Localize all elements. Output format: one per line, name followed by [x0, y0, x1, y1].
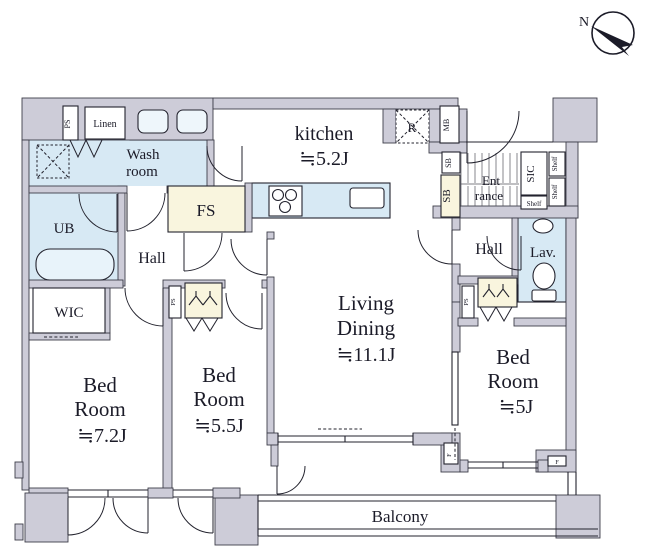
window-swing-2 — [113, 498, 148, 533]
room-label-washroom-2: room — [126, 164, 158, 180]
room-label-ub: UB — [54, 221, 75, 237]
room-label-fs: FS — [197, 201, 216, 220]
pillar-bottom-left — [25, 493, 68, 542]
label-mb: MB — [442, 119, 451, 131]
room-label-linen: Linen — [93, 119, 116, 130]
room-label-bed1-2: Room — [74, 397, 125, 421]
door-balcony — [277, 466, 305, 494]
room-size-bed3: ≒5J — [499, 396, 534, 418]
room-label-hall-left: Hall — [138, 250, 166, 267]
label-shelf-3: Shelf — [551, 184, 559, 199]
sliding-door — [452, 352, 458, 425]
balcony-right-edge — [568, 472, 576, 495]
floor-plan: kitchen ≒5.2J Living Dining ≒11.1J Bed R… — [0, 0, 653, 559]
room-label-entrance-2: rance — [475, 188, 503, 203]
room-size-bed2: ≒5.5J — [194, 415, 244, 437]
room-label-kitchen: kitchen — [295, 123, 354, 145]
room-label-hall-right: Hall — [475, 241, 503, 258]
vanity-sink-2 — [177, 110, 207, 133]
bed1-window — [68, 490, 148, 497]
label-ps-2: PS — [170, 298, 177, 306]
label-sb-large: SB — [441, 189, 453, 202]
room-label-balcony: Balcony — [372, 507, 429, 526]
bathtub — [36, 249, 114, 280]
label-ps-3: PS — [463, 298, 470, 306]
room-size-living: ≒11.1J — [337, 344, 396, 366]
ld-window — [278, 433, 413, 445]
label-shelf-1: Shelf — [527, 200, 542, 208]
floor-plan-page: kitchen ≒5.2J Living Dining ≒11.1J Bed R… — [0, 0, 653, 559]
label-f-2: F — [555, 459, 559, 466]
kitchen-sink — [350, 188, 384, 208]
door-hall-center — [184, 233, 222, 271]
pillar-balcony-left — [215, 495, 258, 545]
room-label-bed2-2: Room — [193, 387, 244, 411]
room-label-living-2: Dining — [337, 316, 396, 340]
bifold-closet-bed2 — [186, 318, 218, 331]
label-sb-small: SB — [444, 158, 453, 168]
door-hall-right-ld — [418, 230, 452, 264]
room-label-bed2-1: Bed — [202, 363, 236, 387]
label-sic: SIC — [525, 165, 537, 182]
door-bed2 — [226, 293, 262, 329]
room-label-living-1: Living — [338, 291, 394, 315]
pillar-top-right — [553, 98, 597, 142]
room-label-bed3-2: Room — [487, 369, 538, 393]
bed2-window — [173, 490, 213, 497]
bed3-window — [468, 462, 538, 468]
pillar-bottom-right — [556, 495, 600, 538]
room-label-washroom-1: Wash — [127, 147, 160, 163]
label-shelf-2: Shelf — [551, 156, 559, 171]
closet-bed2 — [185, 283, 222, 318]
window-swing-3 — [178, 498, 213, 533]
room-label-lav: Lav. — [530, 245, 556, 261]
window-swing-1 — [68, 498, 105, 535]
door-bed1 — [125, 288, 163, 326]
door-washroom-hall — [127, 193, 165, 231]
room-label-entrance-1: Ent — [482, 173, 500, 188]
balcony-rail — [258, 495, 556, 501]
label-refrigerator: R — [408, 120, 417, 135]
room-label-wic: WIC — [54, 305, 83, 321]
label-ps-1: PS — [63, 120, 72, 129]
room-label-bed1-1: Bed — [83, 373, 117, 397]
compass: N — [579, 12, 634, 56]
compass-north-label: N — [579, 15, 589, 30]
bifold-closet-bed3 — [480, 307, 512, 321]
closet-bed3 — [478, 278, 517, 307]
room-size-bed1: ≒7.2J — [77, 425, 127, 447]
room-label-bed3-1: Bed — [496, 345, 530, 369]
compass-circle — [592, 12, 634, 54]
room-size-kitchen: ≒5.2J — [299, 148, 349, 170]
door-hall-ld — [231, 239, 267, 275]
label-f-1: F — [446, 453, 453, 457]
vanity-sink-1 — [138, 110, 168, 133]
toilet-tank — [532, 290, 556, 301]
lav-sink — [533, 219, 553, 233]
toilet-bowl — [533, 263, 555, 289]
washroom-floor — [29, 140, 207, 186]
